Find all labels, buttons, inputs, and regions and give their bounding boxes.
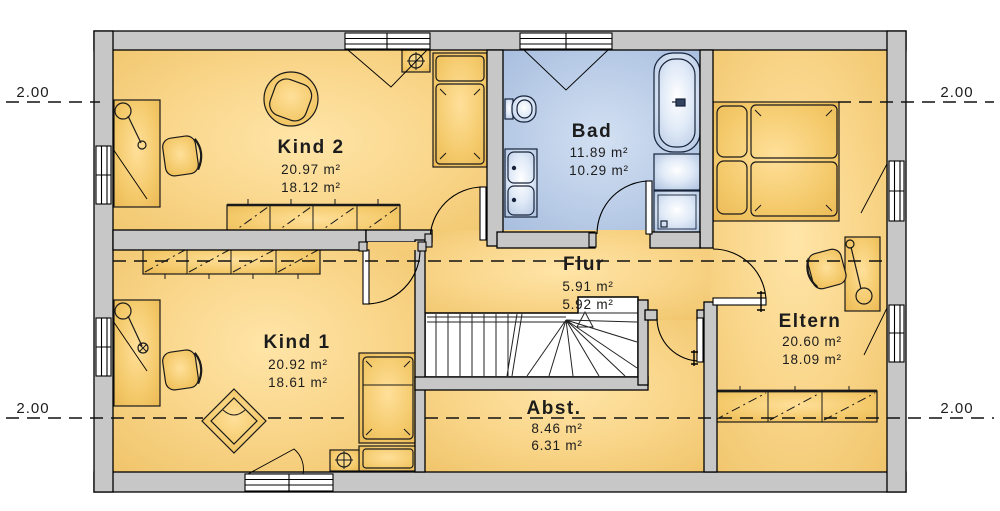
eltern-label: Eltern: [779, 311, 842, 332]
kind1-area-gross: 20.92 m²: [268, 357, 328, 372]
interior-wall: [650, 232, 700, 248]
bathtub: [654, 53, 700, 152]
shower: [654, 191, 700, 233]
exterior-wall-bottom: [94, 472, 906, 492]
abstellraum-area-net: 6.31 m²: [531, 438, 582, 453]
double-bed: [713, 102, 839, 221]
kind2-label: Kind 2: [277, 137, 344, 158]
interior-wall: [415, 240, 425, 472]
floor-plan-canvas: Kind 2 20.97 m² 18.12 m² Bad 11.89 m² 10…: [0, 0, 1000, 511]
armchair: [264, 72, 318, 126]
bad-area-net: 10.29 m²: [569, 163, 629, 178]
flur-area-net: 5.92 m²: [562, 297, 613, 312]
eltern-area-net: 18.09 m²: [782, 352, 842, 367]
toilet: [505, 96, 536, 122]
interior-wall: [415, 377, 648, 390]
wardrobe: [713, 386, 877, 422]
exterior-wall-top: [94, 31, 906, 50]
wardrobe: [143, 248, 320, 279]
abstellraum-area-gross: 8.46 m²: [531, 421, 582, 436]
dimension-bottom-right: 2.00: [940, 400, 973, 417]
bed-single: [359, 353, 417, 471]
eltern-area-gross: 20.60 m²: [782, 334, 842, 349]
interior-wall: [497, 232, 595, 248]
radiator-symbol: [330, 450, 359, 471]
interior-wall: [700, 50, 713, 248]
bath-cabinet: [654, 154, 700, 190]
exterior-wall-left: [94, 31, 113, 492]
dimension-bottom-left: 2.00: [16, 400, 49, 417]
kind2-area-net: 18.12 m²: [281, 180, 341, 195]
flur-area-gross: 5.91 m²: [562, 279, 613, 294]
double-washbasin: [505, 149, 537, 217]
desk: [845, 237, 880, 311]
kind1-label: Kind 1: [263, 332, 330, 353]
bad-area-gross: 11.89 m²: [570, 145, 629, 160]
bad-label: Bad: [572, 121, 612, 142]
interior-wall: [704, 302, 717, 472]
abstellraum-label: Abst.: [527, 398, 582, 419]
desk: [114, 100, 160, 207]
interior-wall: [645, 310, 657, 320]
interior-wall: [113, 230, 366, 250]
bed-single: [433, 53, 487, 167]
kind1-area-net: 18.61 m²: [268, 375, 328, 390]
flur-label: Flur: [563, 254, 605, 275]
exterior-wall-right: [887, 31, 906, 492]
kind2-area-gross: 20.97 m²: [281, 162, 341, 177]
interior-wall: [487, 50, 503, 246]
floor-plan-drawing: Kind 2 20.97 m² 18.12 m² Bad 11.89 m² 10…: [0, 0, 1000, 511]
dimension-top-right: 2.00: [940, 84, 973, 101]
dimension-top-left: 2.00: [16, 84, 49, 101]
desk: [114, 300, 160, 406]
door-reveal: [368, 242, 418, 250]
